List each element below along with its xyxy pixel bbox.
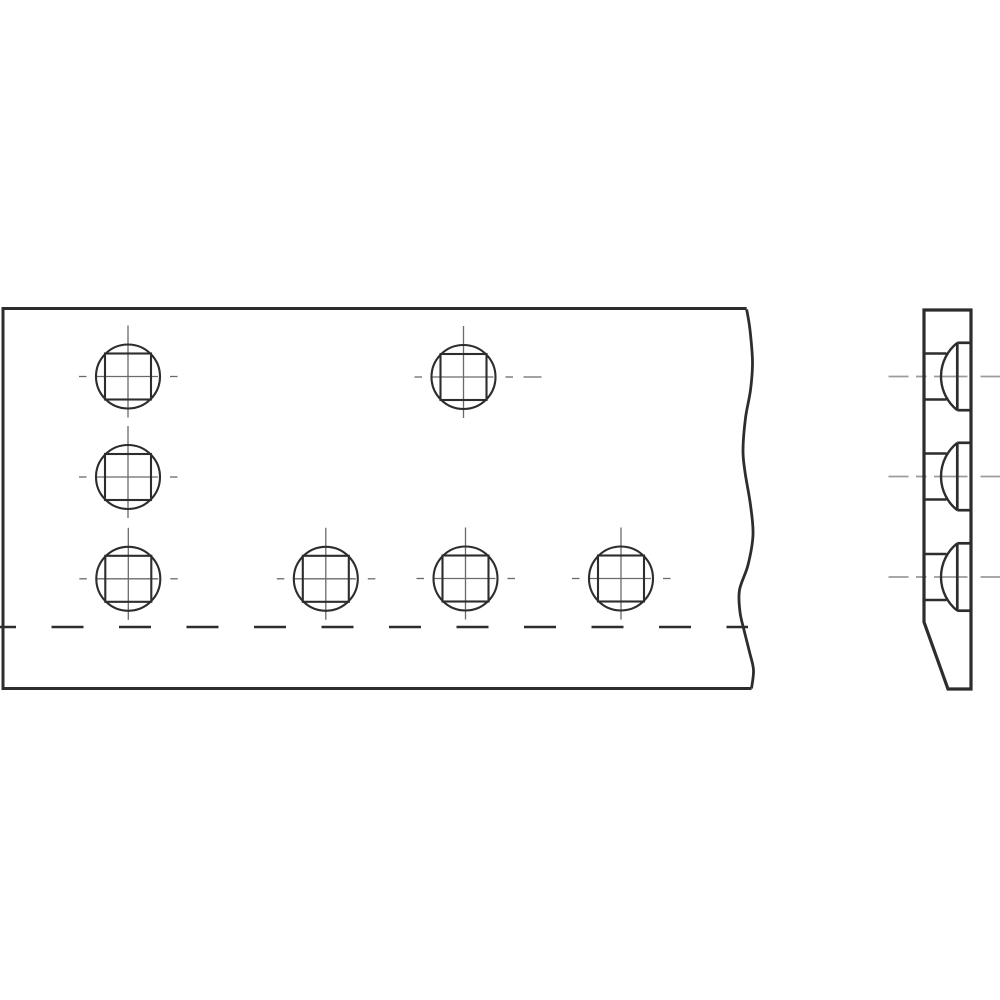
- technical-drawing: [0, 0, 1000, 1000]
- drawing-page: [0, 0, 1000, 1000]
